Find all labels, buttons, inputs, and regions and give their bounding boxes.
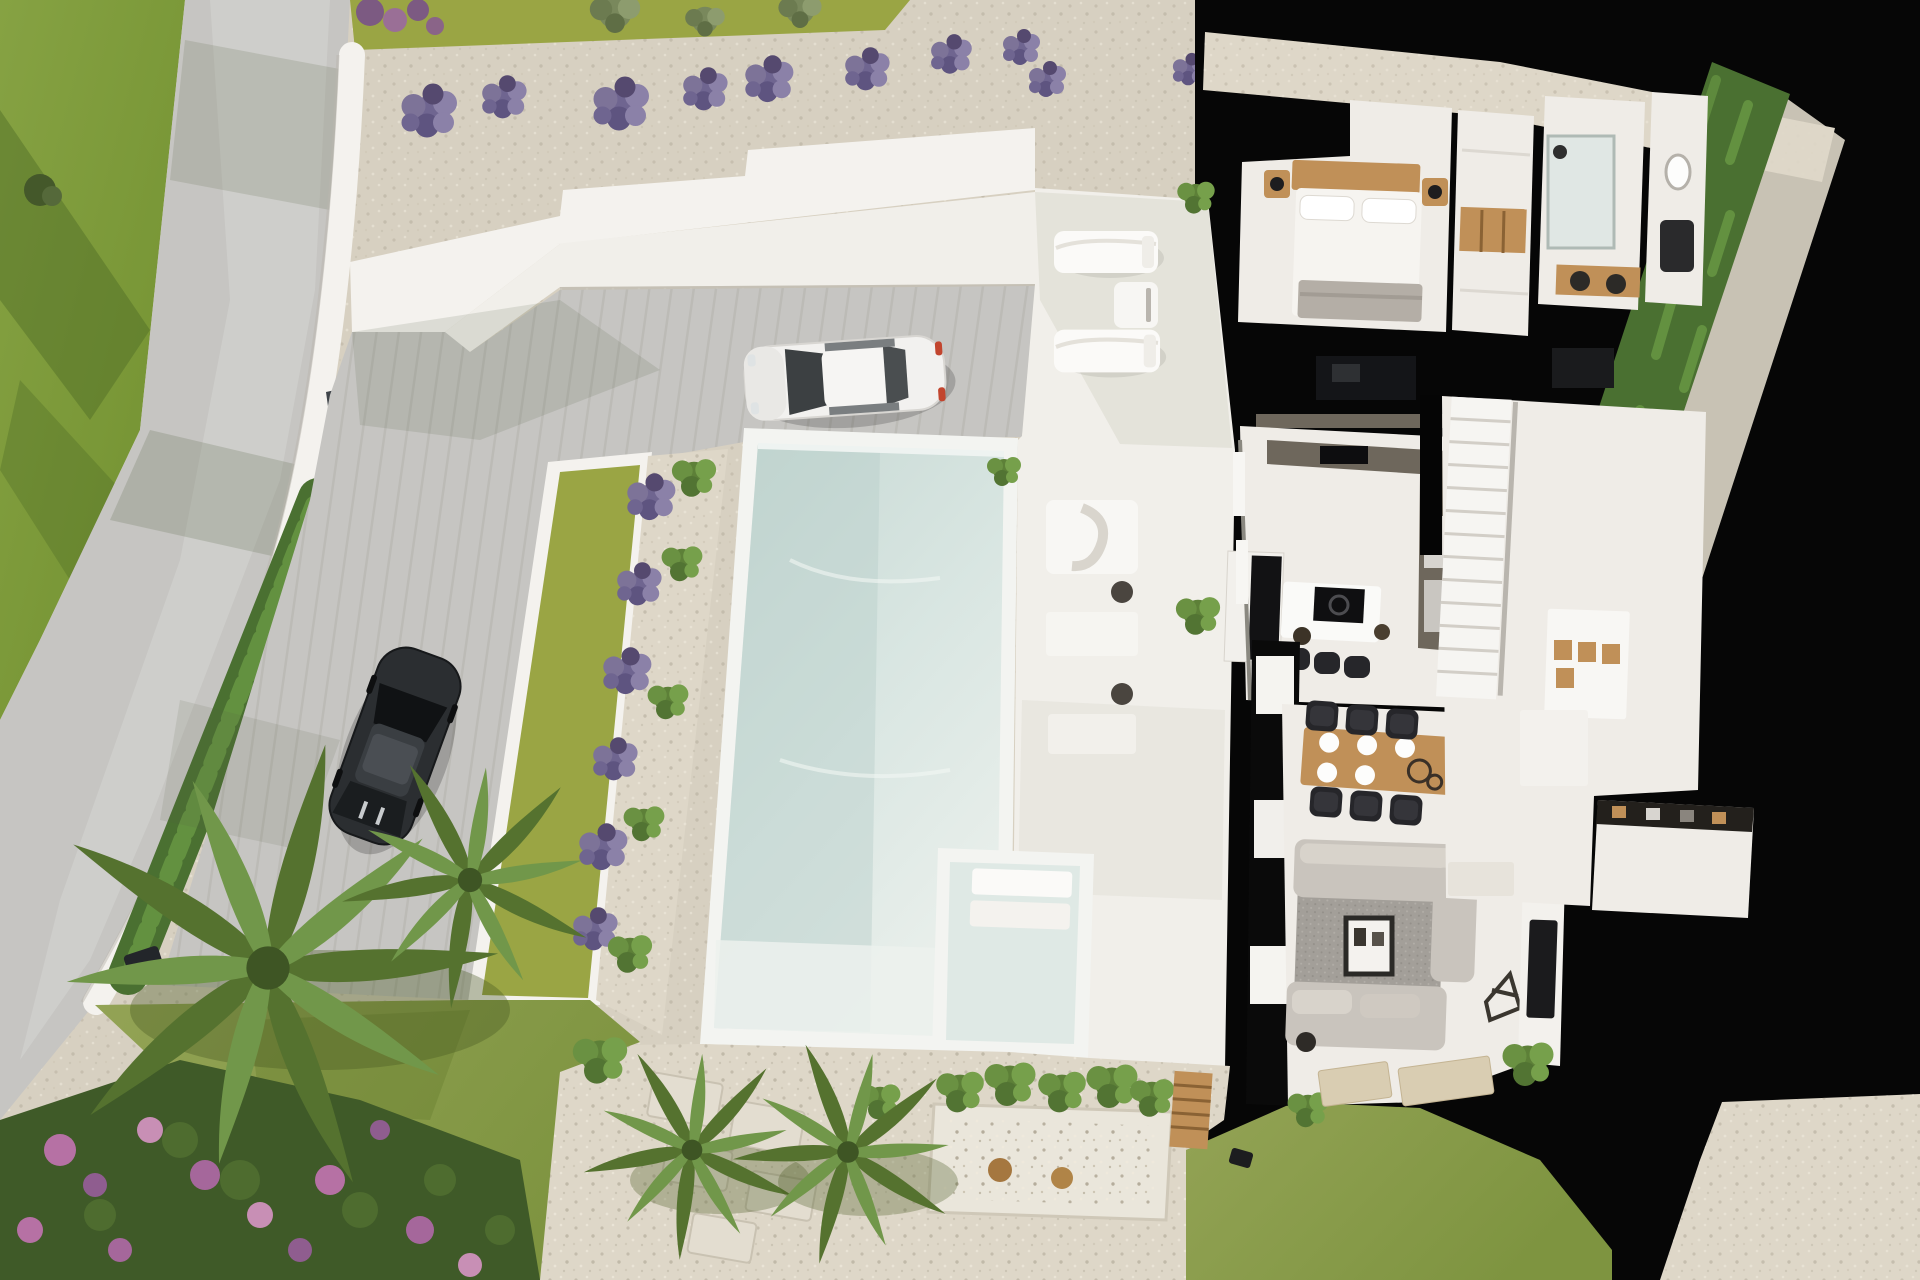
dry-grass-1	[988, 1158, 1012, 1182]
bedside-lamp-right	[1428, 185, 1442, 199]
bedside-lamp-left	[1270, 177, 1284, 191]
render-canvas	[0, 0, 1920, 1280]
utility-cabinet	[1552, 348, 1614, 388]
deck-bench	[1048, 714, 1136, 754]
vanity-counter	[1556, 265, 1641, 298]
console-decor-1	[1354, 928, 1366, 946]
vanity-bathroom	[1645, 92, 1708, 306]
road-shadow-1	[170, 40, 345, 210]
appliance-front	[1332, 364, 1360, 382]
dining-set	[1300, 727, 1454, 795]
planter-gravel	[943, 1118, 1158, 1206]
door-panel-5	[1250, 946, 1288, 1004]
toilet	[1666, 155, 1690, 189]
dry-grass-2	[1051, 1167, 1073, 1189]
deck-side-table-1	[1111, 581, 1133, 603]
console-decor-2	[1372, 932, 1384, 946]
side-table-handle	[1146, 288, 1151, 322]
bathroom-floor	[1645, 92, 1708, 306]
decor-bowl	[1374, 624, 1390, 640]
hall-cabinet	[1520, 710, 1588, 786]
bed-throw	[1297, 280, 1422, 322]
tv-panel	[1526, 920, 1557, 1019]
side-table-dark	[1296, 1032, 1316, 1052]
shower-room	[1538, 96, 1645, 310]
kitchen-sink-hob	[1320, 446, 1368, 464]
sofa-cushion-1	[1292, 990, 1352, 1014]
tall-units	[1316, 356, 1416, 400]
aerial-villa-render	[0, 0, 1920, 1280]
door-panel-2	[1236, 540, 1248, 604]
lounge-corner	[1046, 500, 1138, 754]
pillow-1	[1300, 195, 1355, 221]
deck-console	[1046, 612, 1138, 656]
wood-screen	[1169, 1071, 1212, 1149]
island-hob	[1313, 587, 1365, 624]
pool-pad-1	[972, 868, 1073, 897]
door-panel-1	[1233, 452, 1245, 516]
sink-1	[1570, 271, 1590, 291]
entrance-mat	[1448, 862, 1514, 896]
pillow-2	[1362, 198, 1417, 224]
lounger-side-table	[1114, 282, 1158, 328]
storage-room	[1592, 800, 1754, 918]
sofa-cushion-2	[1360, 994, 1420, 1018]
pool-pad-2	[970, 900, 1071, 929]
deck-side-table-2	[1111, 683, 1133, 705]
bathtub	[1660, 220, 1694, 272]
stair-void	[1420, 395, 1442, 555]
fireplace-console	[1346, 918, 1392, 974]
wardrobe-shelf	[1459, 207, 1526, 253]
sink-2	[1606, 274, 1626, 294]
wardrobe	[1452, 110, 1534, 336]
shower-head	[1553, 145, 1567, 159]
